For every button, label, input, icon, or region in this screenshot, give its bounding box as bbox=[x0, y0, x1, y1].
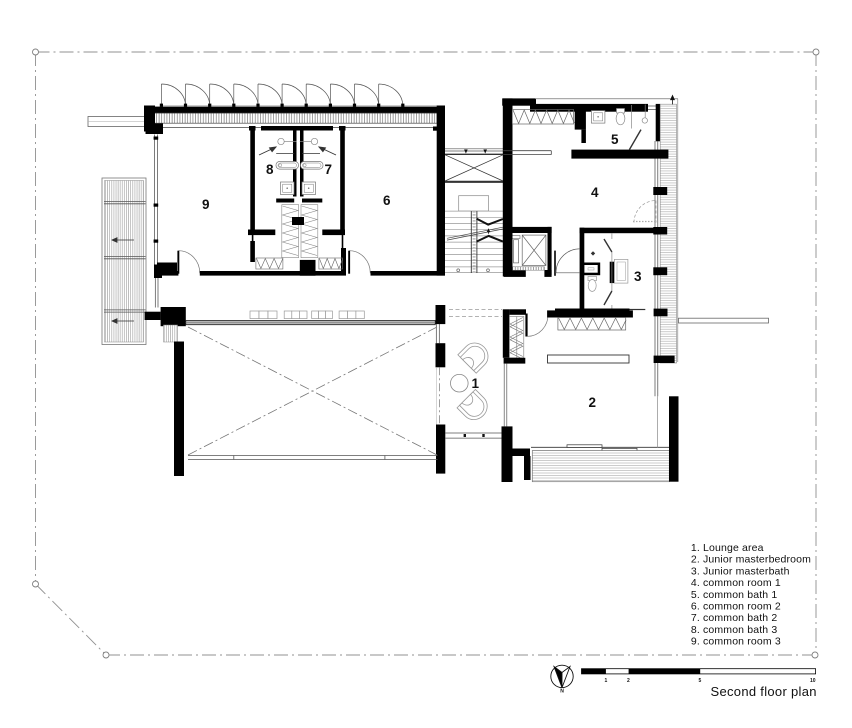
svg-text:8. common bath 3: 8. common bath 3 bbox=[691, 624, 777, 636]
svg-text:Second floor plan: Second floor plan bbox=[711, 684, 817, 699]
svg-text:1: 1 bbox=[605, 678, 608, 684]
svg-text:6. common room 2: 6. common room 2 bbox=[691, 601, 781, 613]
svg-text:4: 4 bbox=[591, 185, 599, 200]
svg-text:7. common bath 2: 7. common bath 2 bbox=[691, 612, 777, 624]
svg-text:N: N bbox=[560, 689, 564, 695]
svg-text:2: 2 bbox=[589, 395, 597, 410]
svg-text:1. Lounge area: 1. Lounge area bbox=[691, 542, 764, 554]
svg-text:2. Junior masterbedroom: 2. Junior masterbedroom bbox=[691, 554, 811, 566]
svg-text:3: 3 bbox=[634, 269, 642, 284]
svg-text:5: 5 bbox=[699, 678, 702, 684]
svg-text:4. common room 1: 4. common room 1 bbox=[691, 577, 781, 589]
svg-text:3. Junior masterbath: 3. Junior masterbath bbox=[691, 565, 790, 577]
svg-text:8: 8 bbox=[266, 162, 274, 177]
svg-text:5. common bath 1: 5. common bath 1 bbox=[691, 589, 777, 601]
svg-text:6: 6 bbox=[383, 193, 391, 208]
svg-text:1: 1 bbox=[472, 376, 480, 391]
svg-text:5: 5 bbox=[611, 132, 619, 147]
svg-text:9. common room 3: 9. common room 3 bbox=[691, 636, 781, 648]
svg-text:7: 7 bbox=[325, 162, 333, 177]
svg-text:9: 9 bbox=[202, 197, 210, 212]
svg-text:2: 2 bbox=[627, 678, 630, 684]
